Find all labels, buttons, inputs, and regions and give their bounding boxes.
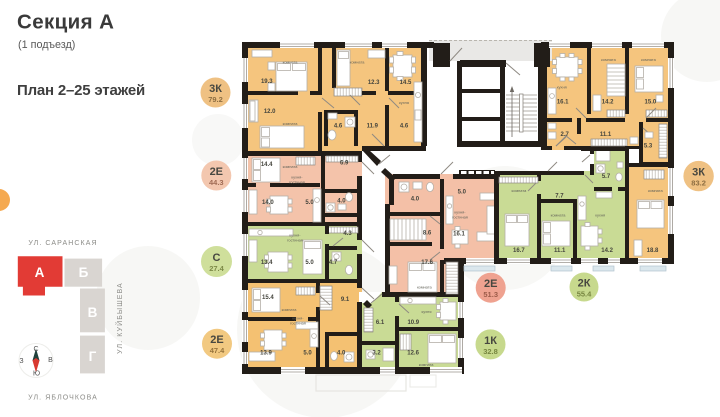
- svg-text:2Е: 2Е: [484, 278, 497, 290]
- svg-text:комната: комната: [601, 57, 617, 62]
- svg-text:16.7: 16.7: [513, 248, 525, 254]
- svg-text:4.6: 4.6: [334, 124, 343, 130]
- svg-text:5.0: 5.0: [305, 260, 314, 266]
- svg-text:15.0: 15.0: [645, 100, 657, 106]
- svg-text:С: С: [33, 346, 38, 353]
- svg-text:16.1: 16.1: [557, 100, 569, 106]
- svg-text:А: А: [35, 265, 45, 280]
- svg-text:комната: комната: [282, 307, 298, 312]
- svg-text:14.2: 14.2: [602, 100, 614, 106]
- svg-text:комната: комната: [283, 164, 299, 169]
- svg-text:комната: комната: [512, 188, 528, 193]
- svg-text:5.3: 5.3: [644, 144, 653, 150]
- svg-text:комната: комната: [648, 188, 664, 193]
- svg-text:гостиная: гостиная: [452, 215, 468, 220]
- svg-text:кухня: кухня: [557, 85, 567, 90]
- svg-text:79.2: 79.2: [208, 95, 223, 104]
- svg-text:32.8: 32.8: [483, 347, 498, 356]
- svg-text:18.8: 18.8: [647, 248, 659, 254]
- svg-text:5.7: 5.7: [602, 174, 611, 180]
- svg-text:1К: 1К: [484, 335, 497, 347]
- svg-text:кухня: кухня: [422, 309, 432, 314]
- svg-text:комната: комната: [350, 60, 366, 65]
- svg-text:3.2: 3.2: [372, 351, 381, 357]
- svg-text:гостиная: гостиная: [290, 321, 306, 326]
- svg-text:5.0: 5.0: [458, 190, 467, 196]
- svg-text:11.1: 11.1: [554, 248, 566, 254]
- svg-text:комната: комната: [283, 121, 299, 126]
- svg-text:11.1: 11.1: [600, 132, 612, 138]
- svg-text:4.0: 4.0: [337, 351, 346, 357]
- svg-text:51.3: 51.3: [483, 290, 498, 299]
- svg-text:14.5: 14.5: [400, 80, 412, 86]
- svg-text:5.0: 5.0: [305, 200, 314, 206]
- svg-text:План 2–25 этажей: План 2–25 этажей: [17, 82, 145, 99]
- svg-text:12.0: 12.0: [264, 109, 276, 115]
- svg-text:кухня: кухня: [399, 100, 409, 105]
- svg-text:19.3: 19.3: [261, 79, 273, 85]
- svg-text:гостиная: гостиная: [287, 238, 303, 243]
- svg-text:В: В: [88, 305, 98, 320]
- svg-text:3К: 3К: [209, 83, 222, 95]
- svg-text:2Е: 2Е: [210, 166, 223, 178]
- svg-text:83.2: 83.2: [691, 179, 706, 188]
- svg-text:комната: комната: [417, 285, 433, 290]
- svg-text:2.7: 2.7: [561, 132, 570, 138]
- svg-text:55.4: 55.4: [577, 290, 592, 299]
- svg-text:16.1: 16.1: [453, 232, 465, 238]
- svg-text:9.1: 9.1: [341, 297, 350, 303]
- svg-text:УЛ. ЯБЛОЧКОВА: УЛ. ЯБЛОЧКОВА: [28, 395, 98, 402]
- svg-text:14.4: 14.4: [261, 162, 273, 168]
- svg-text:гостиная: гостиная: [289, 180, 305, 185]
- svg-text:6.9: 6.9: [340, 161, 349, 167]
- svg-text:4.6: 4.6: [400, 124, 409, 130]
- svg-text:комната: комната: [419, 362, 435, 367]
- svg-text:6.1: 6.1: [376, 320, 385, 326]
- svg-text:(1 подъезд): (1 подъезд): [18, 39, 75, 51]
- svg-text:4.7: 4.7: [329, 260, 338, 266]
- svg-text:Секция А: Секция А: [17, 11, 114, 34]
- svg-text:2К: 2К: [578, 278, 591, 290]
- svg-text:Г: Г: [89, 349, 97, 364]
- svg-text:44.3: 44.3: [209, 178, 224, 187]
- svg-text:УЛ. КУЙБЫШЕВА: УЛ. КУЙБЫШЕВА: [115, 282, 124, 354]
- svg-text:УЛ. САРАНСКАЯ: УЛ. САРАНСКАЯ: [28, 240, 97, 247]
- svg-text:комната: комната: [641, 57, 657, 62]
- svg-text:С: С: [213, 252, 221, 264]
- svg-text:12.3: 12.3: [368, 80, 380, 86]
- svg-text:кухня: кухня: [595, 213, 605, 218]
- svg-text:8.6: 8.6: [423, 231, 432, 237]
- svg-text:5.0: 5.0: [303, 351, 312, 357]
- svg-text:3К: 3К: [692, 167, 705, 179]
- svg-text:комната: комната: [283, 60, 299, 65]
- svg-text:2Е: 2Е: [210, 334, 223, 346]
- svg-text:В: В: [48, 357, 53, 364]
- svg-text:13.4: 13.4: [261, 260, 273, 266]
- svg-text:7.7: 7.7: [555, 194, 564, 200]
- svg-text:14.2: 14.2: [601, 248, 613, 254]
- svg-text:47.4: 47.4: [210, 346, 225, 355]
- svg-text:4.3: 4.3: [343, 231, 352, 237]
- svg-text:4.0: 4.0: [411, 197, 420, 203]
- svg-text:Б: Б: [79, 265, 89, 280]
- svg-text:12.6: 12.6: [407, 351, 419, 357]
- svg-text:4.0: 4.0: [337, 199, 346, 205]
- svg-text:17.6: 17.6: [421, 260, 433, 266]
- svg-text:14.0: 14.0: [262, 200, 274, 206]
- svg-text:комната: комната: [551, 213, 567, 218]
- svg-text:10.9: 10.9: [407, 320, 419, 326]
- svg-text:13.9: 13.9: [260, 351, 272, 357]
- svg-text:З: З: [19, 358, 23, 365]
- svg-text:15.4: 15.4: [262, 295, 274, 301]
- svg-text:27.4: 27.4: [209, 264, 224, 273]
- svg-text:Ю: Ю: [33, 371, 40, 378]
- svg-text:11.9: 11.9: [367, 124, 379, 130]
